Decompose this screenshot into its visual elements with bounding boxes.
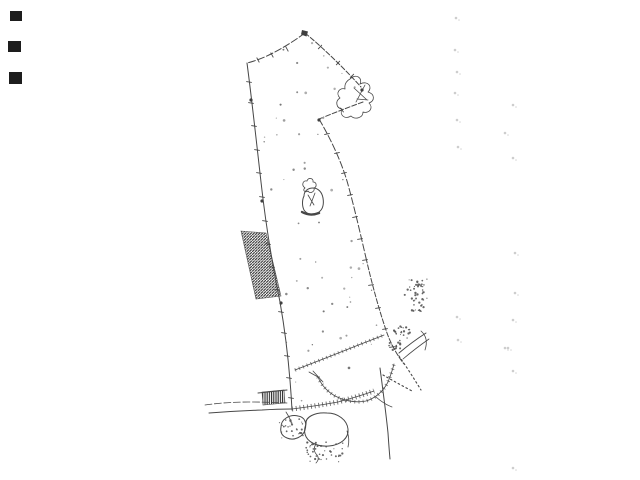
stipple-patches	[279, 279, 428, 463]
notch-upper-edge	[319, 102, 363, 119]
diagonal-dotted-road-a	[399, 356, 421, 390]
building-symbol	[302, 178, 323, 214]
hatched-block	[241, 231, 281, 299]
scanner-edge-marks	[8, 11, 22, 84]
building-inner-marks	[308, 193, 315, 206]
right-boundary-lower	[366, 258, 404, 364]
scanned-map-page	[0, 0, 640, 480]
building-bottom-strip	[302, 212, 319, 215]
bleedthrough-specks	[454, 17, 519, 471]
ne-corner-scribble	[337, 76, 374, 118]
hedge-roadside-ticks	[292, 391, 374, 409]
ne-road-stub-a	[399, 333, 426, 353]
parcel-outline	[247, 30, 404, 410]
boundary-ticks	[246, 45, 395, 398]
hatched-strip-area	[241, 231, 287, 405]
hedge-upper-line	[295, 335, 384, 370]
parcel-edge-top-left	[247, 33, 305, 63]
road-bottom-line	[209, 409, 291, 413]
parcel-edge-top-right	[305, 33, 361, 87]
building-knot-scribble	[303, 178, 316, 192]
scan-flecks	[263, 42, 377, 401]
survey-drawing	[0, 0, 640, 480]
pond-right	[305, 413, 348, 446]
pond-tail	[347, 431, 349, 447]
right-boundary-upper	[319, 119, 366, 258]
